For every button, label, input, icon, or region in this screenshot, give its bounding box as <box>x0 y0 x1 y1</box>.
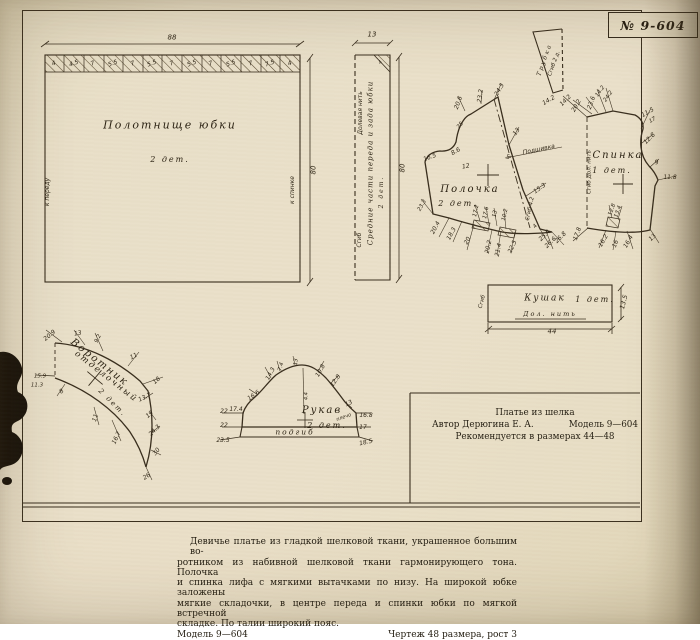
measurement-label: 20.6 <box>454 96 464 111</box>
measurement-label: 17 <box>359 425 367 431</box>
measurement-label: 4 <box>287 61 293 68</box>
measurement-label: 22.5 <box>507 240 518 255</box>
piece-skirt-panel: Полотнище юбки <box>103 120 237 131</box>
measurement-label: 23.2 <box>477 89 485 103</box>
measurement-label: 12.8 <box>330 374 343 388</box>
measurement-label: 13 <box>294 358 300 365</box>
measurement-label: 5.5 <box>225 60 236 69</box>
measurement-label: 16.6 <box>247 390 261 403</box>
description-line: Девичье платье из гладкой шелковой ткани… <box>177 537 517 558</box>
footer-model: Модель 9—604 <box>177 630 248 640</box>
measurement-label: 22 <box>220 423 228 429</box>
measurement-label: 4 <box>51 61 57 68</box>
caption-sizes: Рекомендуется в размерах 44—48 <box>432 431 638 443</box>
caption-block: Платье из шелка Автор Дерюгина Е. А. Мод… <box>432 407 638 443</box>
measurement-label: 11 <box>92 413 100 422</box>
dim-skirt-length: 80 <box>311 166 318 175</box>
measurement-label: 13 <box>493 210 500 218</box>
measurement-label: 13 <box>344 400 353 409</box>
measurement-label: 23.5 <box>216 438 229 444</box>
measurement-label: Сгиб <box>479 295 488 310</box>
measurement-label: 4.4 <box>305 392 310 400</box>
measurement-label: 5 <box>506 155 510 161</box>
measurement-label: 20.2 <box>571 99 583 114</box>
measurement-label: 19 <box>145 410 155 420</box>
measurement-label: к переду <box>45 178 51 206</box>
measurement-label: 20.9 <box>43 329 57 342</box>
measurement-label: 7 <box>169 61 175 68</box>
measurement-label: 24.3 <box>148 424 162 438</box>
measurement-label: 7 <box>130 61 136 68</box>
measurement-label: 7 <box>248 61 254 68</box>
measurement-label: 14.2 <box>542 95 557 107</box>
measurement-label: 20.4 <box>430 221 442 236</box>
measurement-label: 12.8 <box>643 132 657 146</box>
measurement-label: 20.2 <box>485 240 494 254</box>
label-grain-line: Дол. нить <box>523 311 577 318</box>
measurement-label: 11.8 <box>663 175 676 181</box>
measurement-label: 4 <box>378 60 384 66</box>
measurement-label: 18 <box>152 376 162 386</box>
measurement-label: 16.2 <box>598 234 610 249</box>
measurement-label: 26.8 <box>554 231 568 245</box>
measurement-label: 7.5 <box>264 60 275 69</box>
measurement-label: 5.5 <box>107 60 118 69</box>
measurement-label: Сгиб 4.2 <box>526 197 536 222</box>
measurement-label: 30 <box>152 447 162 457</box>
measurement-label: 11.3 <box>31 383 43 389</box>
measurement-label: 26 <box>142 472 152 481</box>
measurement-label: 4 <box>533 224 539 230</box>
measurement-label: Долевая нить <box>358 91 364 134</box>
measurement-label: 18.3 <box>446 227 458 242</box>
measurement-label: 17.4 <box>229 407 242 413</box>
label-hem: подгиб <box>275 428 314 436</box>
description-paragraph: Девичье платье из гладкой шелковой ткани… <box>177 537 517 640</box>
measurement-label: 23.3 <box>418 199 429 212</box>
description-line: и спинка лифа с мягкими вытачками по низ… <box>177 578 517 599</box>
caption-title: Платье из шелка <box>432 407 638 419</box>
dim-strip-width: 13 <box>368 32 377 39</box>
measurement-label: Сгиб Дол. нить <box>587 150 593 194</box>
measurement-label: 8 <box>59 388 66 395</box>
label-hem-facing: Подшивка <box>522 144 555 157</box>
measurement-label: 23.6 <box>587 96 597 111</box>
measurement-label: 2 дет. <box>379 176 385 209</box>
measurement-label: 22 <box>220 409 228 415</box>
measurement-label: 7.4 <box>278 362 286 372</box>
measurement-label: 12 <box>462 163 471 170</box>
measurement-label: 5.5 <box>186 60 197 69</box>
caption-author: Автор Дерюгина Е. А. <box>432 419 534 431</box>
dim-sash-length: 44 <box>548 329 557 336</box>
measurement-label: 20 <box>464 236 473 246</box>
measurement-label: 7 <box>90 61 96 68</box>
measurement-label: 21.4 <box>495 243 504 257</box>
measurement-label: 24.2 <box>603 90 615 103</box>
measurement-label: 24.3 <box>494 83 506 98</box>
piece-front-bodice: Полочка <box>440 185 499 195</box>
measurement-label: к спинке <box>290 176 296 204</box>
dim-sash-width: 13.5 <box>619 294 629 310</box>
measurement-label: 1 дет. <box>592 167 632 175</box>
measurement-label: 11 <box>129 353 138 362</box>
measurement-label: 10.2 <box>502 208 510 221</box>
measurement-label: 13 <box>648 233 658 243</box>
measurement-label: 13.7 <box>138 392 153 403</box>
measurement-label: 9 <box>654 160 659 167</box>
measurement-label: 2 дет. <box>150 156 190 164</box>
measurement-label: 14.3 <box>265 367 277 382</box>
caption-model: Модель 9—604 <box>569 419 638 431</box>
measurement-label: 17.2 <box>473 204 481 217</box>
measurement-label: 7 <box>208 61 214 68</box>
measurement-label: 13 <box>74 330 83 337</box>
measurement-label: 13 <box>512 127 521 137</box>
diagram-labels-layer: 8844.575.575.575.575.577.54Полотнище юбк… <box>0 0 700 624</box>
description-line: ротником из набивной шелковой ткани гарм… <box>177 558 517 579</box>
measurement-label: 25 <box>457 122 466 131</box>
measurement-label: 14.2 <box>559 94 573 108</box>
measurement-label: 8.6 <box>450 147 461 157</box>
measurement-label: 4.5 <box>68 60 79 69</box>
measurement-label: 15.3 <box>533 183 547 196</box>
piece-sash: Кушак <box>524 295 565 304</box>
scanned-page: № 9-604 <box>0 0 700 624</box>
measurement-label: 17 <box>649 117 658 125</box>
description-line: складке. По талии широкий пояс. <box>177 619 517 629</box>
measurement-label: 16.5 <box>423 153 438 163</box>
piece-skirt-middle: Средние части переда и зада юбки <box>368 81 375 246</box>
measurement-label: 13.4 <box>614 205 623 218</box>
measurement-label: 16 <box>612 239 620 248</box>
measurement-label: 80 <box>400 164 407 173</box>
measurement-label: 1 дет. <box>575 296 615 304</box>
footer-drawing-size: Чертеж 48 размера, рост 3 <box>388 630 517 640</box>
measurement-label: 17.6 <box>483 206 491 219</box>
measurement-label: Сгиб <box>357 233 363 248</box>
measurement-label: 2 дет. <box>438 200 478 208</box>
measurement-label: 5.5 <box>146 60 157 69</box>
measurement-label: 15.9 <box>34 374 46 380</box>
measurement-label: 16.8 <box>359 413 372 419</box>
measurement-label: 9.2 <box>95 334 104 344</box>
description-line: мягкие складочки, в центре переда и спин… <box>177 599 517 620</box>
dim-skirt-width: 88 <box>168 35 177 42</box>
measurement-label: 16.4 <box>623 235 635 250</box>
measurement-label: 16.7 <box>111 431 122 446</box>
piece-back: Спинка <box>592 151 643 161</box>
piece-sleeve: Рукав <box>302 406 342 416</box>
measurement-label: 18.5 <box>359 439 373 448</box>
measurement-label: 10.8 <box>315 364 327 379</box>
measurement-label: 17.8 <box>573 227 583 242</box>
